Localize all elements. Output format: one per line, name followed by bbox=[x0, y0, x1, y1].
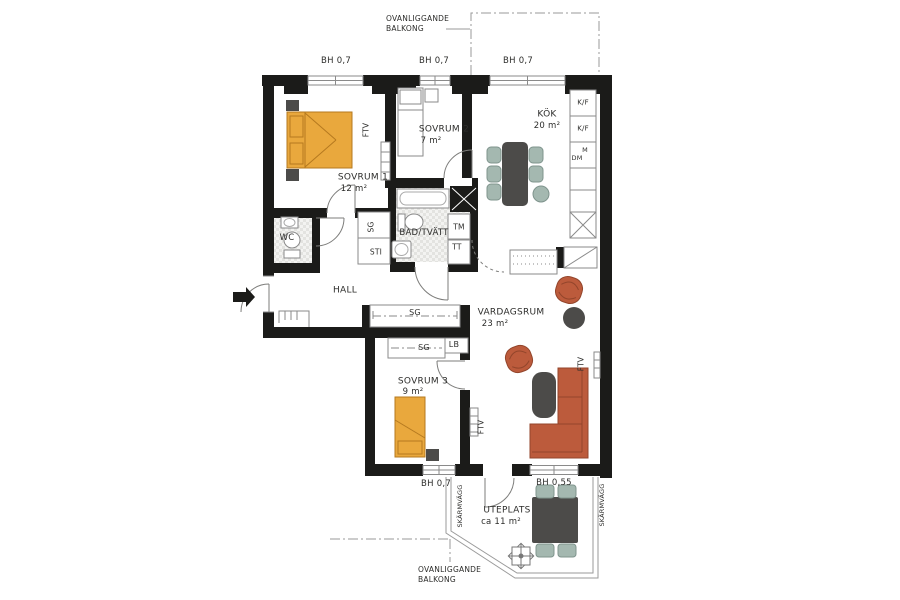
area-label-vardagsrum: 23 m² bbox=[482, 320, 508, 329]
balcony-above-label-bottom: OVANLIGGANDE BALKONG bbox=[418, 565, 490, 585]
armchair bbox=[502, 342, 535, 375]
floor-plan-drawing bbox=[0, 0, 900, 600]
fixture-label-lb: LB bbox=[449, 341, 459, 349]
area-label-sovrum3: 9 m² bbox=[403, 388, 424, 397]
fixture-label-sg: SG bbox=[409, 309, 421, 317]
dining-chair bbox=[529, 147, 543, 163]
fixture-label-kf: K/F bbox=[577, 126, 589, 133]
fixture-label-sti: STI bbox=[370, 248, 382, 256]
armchair bbox=[553, 274, 586, 307]
nightstand bbox=[286, 169, 299, 181]
fixture-label-m: M bbox=[582, 147, 588, 154]
fixture-label-dm: DM bbox=[571, 155, 582, 162]
fixture-label-tt: TT bbox=[452, 243, 461, 251]
window-height-label: BH 0,55 bbox=[536, 479, 572, 488]
window-height-label: BH 0,7 bbox=[421, 480, 451, 489]
area-label-sovrum1: 12 m² bbox=[341, 185, 367, 194]
window-top-2 bbox=[420, 76, 450, 85]
room-label-kok: KÖK bbox=[537, 111, 556, 120]
patio-table bbox=[532, 497, 578, 543]
wc-sink-icon bbox=[281, 217, 298, 228]
bath-door bbox=[415, 267, 448, 300]
patio-chair bbox=[536, 544, 554, 557]
fixture-label-ftv: FTV bbox=[577, 357, 585, 372]
fixture-label-sg: SG bbox=[418, 344, 430, 352]
chairs bbox=[487, 147, 576, 557]
wc-door bbox=[316, 218, 344, 246]
patio-chair bbox=[558, 544, 576, 557]
dining-chair bbox=[487, 166, 501, 182]
bathtub-icon bbox=[397, 189, 449, 208]
balcony-above-label-top: OVANLIGGANDE BALKONG bbox=[386, 14, 458, 34]
compass-ornament-icon bbox=[508, 543, 534, 569]
living-room-seating bbox=[502, 274, 588, 458]
dining-chair bbox=[529, 166, 543, 182]
bed-single-sovrum2 bbox=[398, 88, 438, 156]
screen-wall-label: SKÄRMVÄGG bbox=[599, 483, 606, 526]
fixture-label-sg: SG bbox=[367, 221, 375, 232]
window-bottom-2 bbox=[530, 466, 578, 475]
dining-chair-round bbox=[533, 186, 549, 202]
fixture-label-ftv: FTV bbox=[477, 420, 485, 435]
window-height-label: BH 0,7 bbox=[419, 57, 449, 66]
side-table bbox=[563, 307, 585, 329]
room-label-sovrum2: SOVRUM 2 bbox=[419, 126, 469, 135]
bed-single-sovrum3 bbox=[395, 397, 425, 457]
sideboard bbox=[510, 250, 557, 274]
window-top-1 bbox=[308, 76, 363, 85]
floor-plan: OVANLIGGANDE BALKONG OVANLIGGANDE BALKON… bbox=[0, 0, 900, 600]
window-height-label: BH 0,7 bbox=[503, 57, 533, 66]
fixture-label-ftv: FTV bbox=[362, 123, 370, 138]
room-label-sovrum3: SOVRUM 3 bbox=[398, 378, 448, 387]
fixture-label-tm: TM bbox=[453, 223, 465, 231]
bed-double-sovrum1 bbox=[287, 112, 352, 168]
coat-hooks-icon bbox=[279, 311, 309, 327]
patio-door bbox=[485, 478, 514, 507]
dining-chair bbox=[487, 184, 501, 200]
kitchen-counter bbox=[570, 90, 596, 238]
room-label-uteplats: UTEPLATS bbox=[483, 507, 530, 516]
room-label-hall: HALL bbox=[333, 287, 357, 296]
sink-icon bbox=[392, 241, 411, 258]
nightstand bbox=[426, 449, 439, 461]
fixture-label-kf: K/F bbox=[577, 100, 589, 107]
room-label-vardagsrum: VARDAGSRUM bbox=[478, 309, 545, 318]
dining-chair bbox=[487, 147, 501, 163]
room-label-wc: WC bbox=[280, 234, 295, 243]
dining-table bbox=[502, 142, 528, 206]
window-height-label: BH 0,7 bbox=[321, 57, 351, 66]
area-label-sovrum2: 7 m² bbox=[421, 137, 442, 146]
beds bbox=[287, 112, 425, 457]
area-label-uteplats: ca 11 m² bbox=[481, 518, 521, 527]
window-top-3 bbox=[490, 76, 565, 85]
window-bottom-1 bbox=[423, 466, 455, 475]
area-label-kok: 20 m² bbox=[534, 122, 560, 131]
coffee-table bbox=[532, 372, 556, 418]
room-label-bad: BAD/TVÄTT bbox=[399, 229, 448, 238]
nightstand bbox=[286, 100, 299, 111]
screen-wall-label: SKÄRMVÄGG bbox=[457, 484, 464, 527]
room-label-sovrum1: SOVRUM 1 bbox=[338, 174, 388, 183]
